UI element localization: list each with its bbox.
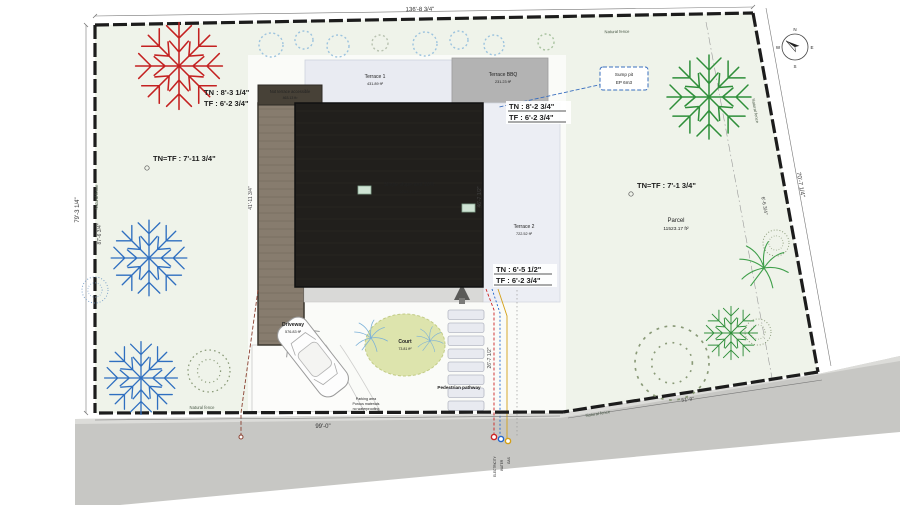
dim-top: 136'-8 3/4" — [406, 7, 435, 13]
compass-n: N — [793, 27, 796, 32]
level-w: TN=TF : 7'-11 3/4" — [153, 154, 216, 163]
parking-note-1: Parking area — [356, 397, 376, 401]
parcel-area: 11523.17 ft² — [663, 226, 689, 232]
deck-name: Not terrace accessible — [270, 89, 311, 94]
parking-note-2: Porous materials — [353, 402, 380, 406]
terrace2-area: 722.52 ft² — [516, 232, 533, 236]
level-nw-tf: TF : 6'-2 3/4" — [204, 99, 249, 108]
terrace1-area: 431.89 ft² — [367, 82, 384, 86]
blue-tree-1 — [111, 220, 187, 296]
terrace2-name: Terrace 2 — [514, 224, 535, 230]
court-area: 73.81 ft² — [398, 347, 412, 351]
dim-house-left: 41'-11 3/4" — [248, 186, 254, 210]
terrace-bbq-area: 231.23 ft² — [495, 80, 512, 84]
green-tree-2 — [704, 306, 757, 359]
skylight-2 — [462, 204, 475, 212]
dim-pathway: 26'-7 1/2" — [487, 347, 493, 368]
skylight-1 — [358, 186, 371, 194]
court-name: Court — [398, 339, 412, 345]
dim-right: 70'-7 1/4" — [795, 172, 805, 198]
driveway-name: Driveway — [282, 322, 304, 328]
water-meter — [498, 436, 503, 441]
level-s-tn: TN : 6'-5 1/2" — [496, 265, 542, 274]
compass-icon: N E S W — [776, 27, 814, 69]
sump-pit-box — [600, 67, 648, 90]
site-plan-canvas: ELECTRICITY WATER GAS — [0, 0, 900, 505]
deck-header — [258, 85, 322, 105]
terrace-bbq-name: Terrace BBQ — [489, 72, 518, 78]
gas-meter — [505, 438, 510, 443]
electricity-meter — [491, 434, 496, 439]
gas-label: GAS — [507, 457, 511, 464]
dim-left: 79'-3 1/4" — [75, 197, 81, 222]
dim-roof-right: 46'-7 1/2" — [477, 186, 483, 207]
terrace1-name: Terrace 1 — [365, 74, 386, 80]
fence-label-left: Natural fence — [94, 184, 99, 210]
driveway-area: 576.83 ft² — [285, 330, 302, 334]
deck-area: 463.13 ft² — [283, 96, 299, 100]
level-c-tn: TN : 8'-2 3/4" — [509, 102, 555, 111]
parcel-name: Parcel — [667, 218, 684, 224]
level-nw-tn: TN : 8'-3 1/4" — [204, 88, 250, 97]
roof-area: 5230.13 ft² — [399, 189, 419, 194]
level-e: TN=TF : 7'-1 3/4" — [637, 181, 696, 190]
sump-pit-line1: Sump pit — [615, 72, 634, 77]
water-label: WATER — [500, 459, 504, 471]
electricity-label: ELECTRICITY — [493, 455, 497, 477]
roof-name: Single slope roof 10% — [384, 182, 435, 188]
pathway-label: Pedestrian pathway — [437, 385, 481, 390]
dim-left-inner: 87'-6 3/4" — [97, 223, 103, 244]
fence-label-top: Natural fence — [604, 29, 630, 34]
parking-note-3: no waterproofing — [353, 407, 380, 411]
dim-bottom: 99'-0" — [315, 424, 330, 430]
compass-s: S — [793, 64, 796, 69]
ep-marker — [239, 435, 243, 439]
entrance-arrow-stem — [459, 298, 465, 304]
court-shape — [365, 314, 445, 376]
compass-e: E — [810, 45, 813, 50]
fence-label-bottom: Natural fence — [190, 405, 216, 410]
blue-tree-2 — [105, 342, 178, 415]
compass-w: W — [776, 45, 781, 50]
level-c-tf: TF : 6'-2 3/4" — [509, 113, 554, 122]
green-tree-1 — [667, 55, 751, 139]
level-s-tf: TF : 6'-2 3/4" — [496, 276, 541, 285]
sump-pit-line2: EP 6m3 — [616, 80, 633, 85]
